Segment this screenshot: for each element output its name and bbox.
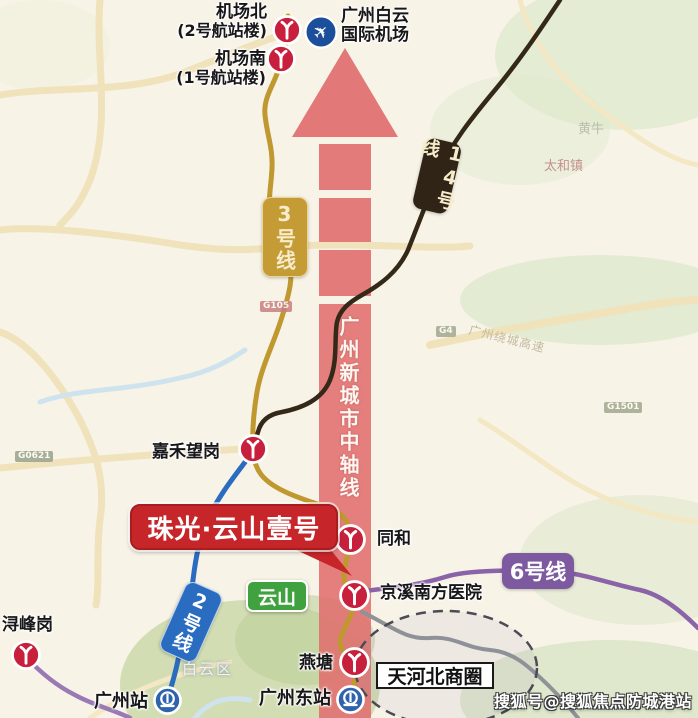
baiyun-district-label: 白云区 (182, 658, 233, 679)
airport-name-line2: 国际机场 (341, 26, 409, 45)
watermark: 搜狐号@搜狐焦点防城港站 (494, 688, 692, 712)
transit-map: ✈ 广州新城市中轴线 3号线 14号线 2号线 6号线 机场北 (2号航站楼) … (0, 0, 698, 718)
airport-name-line1: 广州白云 (341, 7, 409, 26)
faint-label-taihezhen: 太和镇 (544, 155, 583, 174)
metro-icon-yantang (339, 647, 370, 678)
tianhebei-label: 天河北商圈 (376, 662, 494, 689)
airport-north-sub: (2号航站楼) (177, 22, 267, 40)
line6-badge: 6号线 (502, 553, 574, 589)
metro-icon-airport-north (272, 15, 302, 45)
project-callout: 珠光·云山壹号 (130, 504, 338, 550)
station-label-airport-north: 机场北 (2号航站楼) (177, 3, 267, 40)
station-label-guangzhou-east: 广州东站 (259, 689, 331, 709)
yunshan-area-badge: 云山 (246, 580, 308, 612)
line14-badge: 14号线 (411, 137, 462, 215)
metro-icon-airport-south (266, 44, 296, 74)
airport-north-name: 机场北 (177, 3, 267, 22)
rail-icon-guangzhou (153, 686, 182, 715)
station-label-jingxi-hospital: 京溪南方医院 (380, 584, 482, 603)
metro-icon-xunfenggang (11, 640, 41, 670)
station-label-airport-south: 机场南 (1号航站楼) (176, 50, 266, 87)
line3-badge: 3号线 (262, 197, 308, 277)
airport-icon (304, 15, 338, 49)
road-badge-g4: G4 (436, 326, 456, 337)
station-label-tonghe: 同和 (377, 530, 411, 549)
metro-icon-tonghe (335, 524, 366, 555)
metro-icon-jingxi-hospital (339, 580, 370, 611)
station-label-jiahewanggang: 嘉禾望岗 (152, 443, 220, 462)
axis-label: 广州新城市中轴线 (334, 316, 363, 502)
airport-south-name: 机场南 (176, 50, 266, 69)
road-badge-g1501: G1501 (604, 402, 642, 413)
station-label-guangzhou: 广州站 (94, 692, 148, 712)
faint-label-huangniu: 黄牛 (578, 118, 604, 137)
station-label-xunfenggang: 浔峰岗 (2, 616, 53, 635)
airport-name-label: 广州白云 国际机场 (341, 7, 409, 45)
road-badge-g0621: G0621 (15, 451, 53, 462)
metro-icon-jiahewanggang (238, 434, 268, 464)
station-label-yantang: 燕塘 (299, 654, 333, 673)
road-badge-g105: G105 (260, 301, 292, 312)
airport-south-sub: (1号航站楼) (176, 69, 266, 87)
rail-icon-guangzhou-east (336, 685, 365, 714)
